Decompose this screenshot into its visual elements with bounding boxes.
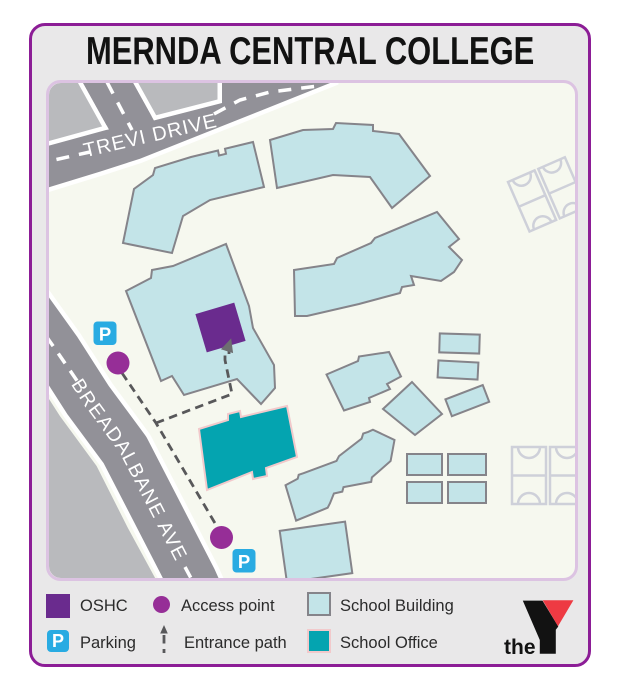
svg-text:P: P — [238, 551, 250, 572]
svg-text:P: P — [99, 324, 111, 345]
svg-text:the: the — [504, 636, 536, 659]
